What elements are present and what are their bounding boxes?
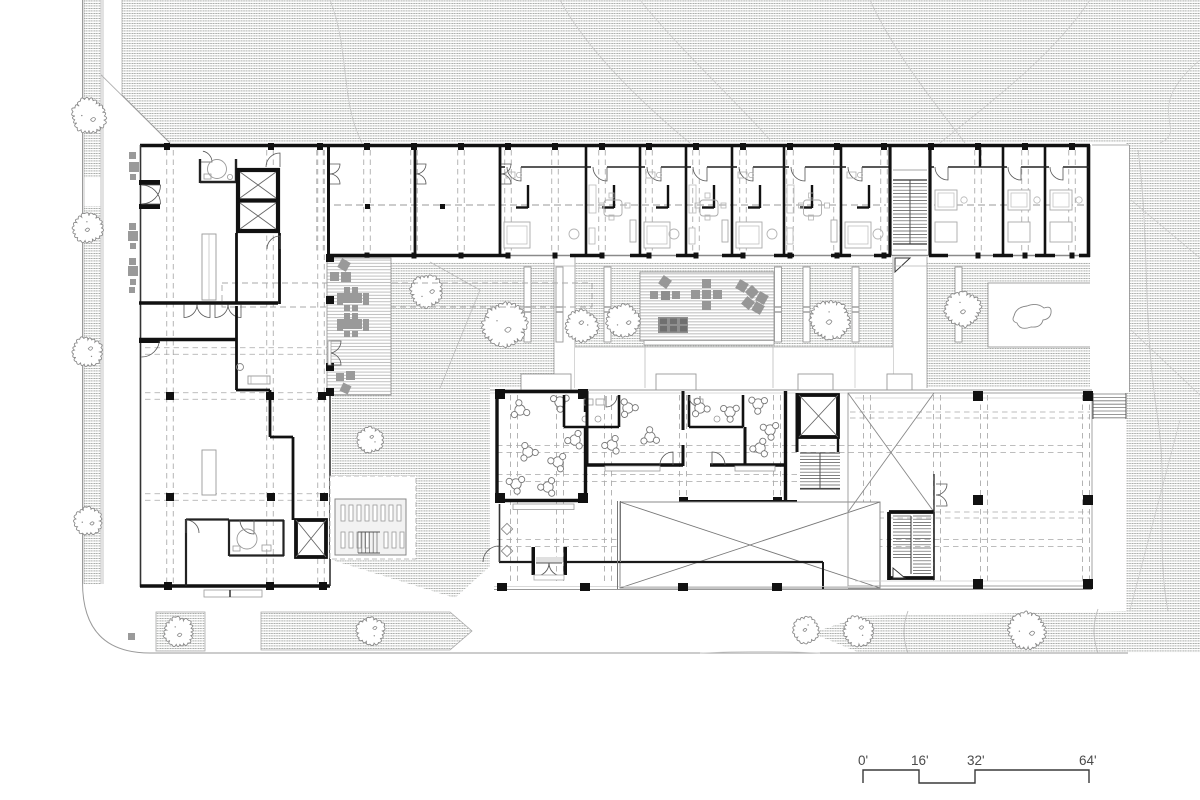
svg-text:0': 0' <box>858 753 868 768</box>
svg-text:16': 16' <box>911 753 929 768</box>
svg-text:64': 64' <box>1079 753 1097 768</box>
svg-text:32': 32' <box>967 753 985 768</box>
